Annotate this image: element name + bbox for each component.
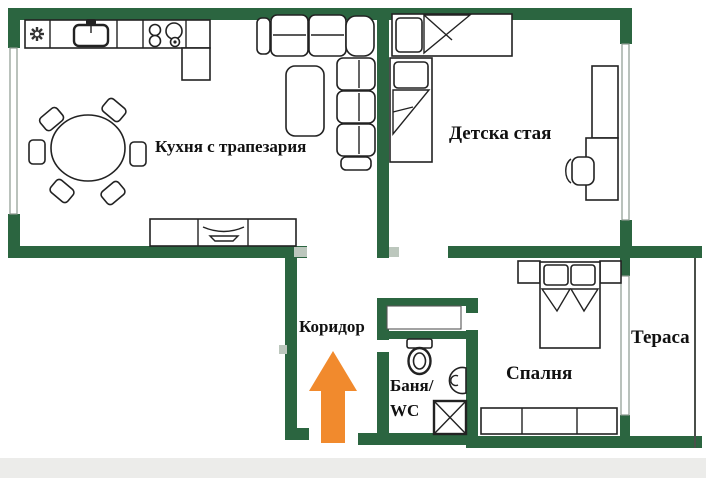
label-bedroom: Спалня	[506, 363, 572, 384]
label-terrace: Тераса	[631, 327, 690, 348]
wall-segment	[466, 330, 478, 445]
label-bathroom-line1: Баня/	[390, 376, 434, 395]
wall-segment	[620, 8, 632, 44]
desk-chair	[566, 157, 594, 185]
label-bathroom-line2: WC	[390, 401, 419, 420]
wall-segment	[8, 246, 307, 258]
wall-segment	[448, 246, 702, 258]
wall-segment	[377, 352, 389, 440]
dining-chair	[48, 178, 75, 204]
bottom-bar	[0, 458, 706, 478]
double-bed	[540, 262, 600, 348]
bed-vertical	[390, 58, 432, 162]
kitchen-furniture	[25, 15, 375, 246]
entrance-arrow	[309, 351, 357, 443]
wall-segment	[466, 298, 478, 313]
wall-segment	[620, 415, 630, 436]
label-kitchen: Кухня с трапезария	[155, 137, 306, 156]
kitchen-counter-column	[182, 48, 210, 80]
wardrobe	[481, 408, 617, 434]
partition-bedroom-terrace	[621, 276, 629, 415]
hall-closet	[387, 306, 461, 329]
dining-set	[29, 97, 146, 206]
toilet-icon	[407, 339, 432, 374]
door-mark-kitchen	[294, 247, 307, 257]
wall-segment	[377, 8, 389, 258]
wall-segment	[285, 428, 309, 440]
floor-plan-image: Кухня с трапезария Детска стая Коридор Б…	[0, 0, 706, 478]
coffee-table	[286, 66, 324, 136]
label-kids-room: Детска стая	[449, 123, 551, 144]
door-mark-entrance	[279, 345, 287, 354]
dining-table	[51, 115, 125, 181]
door-mark-kids-room	[389, 247, 399, 257]
sofa-corner	[346, 16, 374, 56]
kids-room-furniture	[390, 14, 618, 200]
dining-chair	[130, 142, 146, 166]
washbasin-icon	[449, 367, 466, 393]
floor-plan: Кухня с трапезария Детска стая Коридор Б…	[0, 0, 706, 478]
pillow	[571, 265, 595, 285]
nightstand	[600, 261, 621, 283]
sofa-armrest	[257, 18, 270, 54]
bedroom-furniture	[481, 261, 621, 434]
wall-segment	[389, 331, 469, 339]
dining-chair	[99, 180, 126, 206]
dining-chair	[29, 140, 45, 164]
window-kids-room	[622, 44, 629, 220]
wall-segment	[466, 436, 702, 448]
pillow	[394, 62, 428, 88]
window-kitchen	[10, 48, 17, 214]
decor-flower-icon	[30, 27, 44, 41]
nightstand	[518, 261, 540, 283]
pillow	[544, 265, 568, 285]
pillow	[396, 18, 422, 52]
wall-segment	[389, 298, 478, 306]
shower-icon	[434, 401, 466, 434]
sofa-armrest	[341, 157, 371, 170]
bed-horizontal	[392, 14, 512, 56]
tv-cabinet	[150, 219, 296, 246]
wall-segment	[8, 8, 20, 48]
label-corridor: Коридор	[299, 317, 365, 336]
